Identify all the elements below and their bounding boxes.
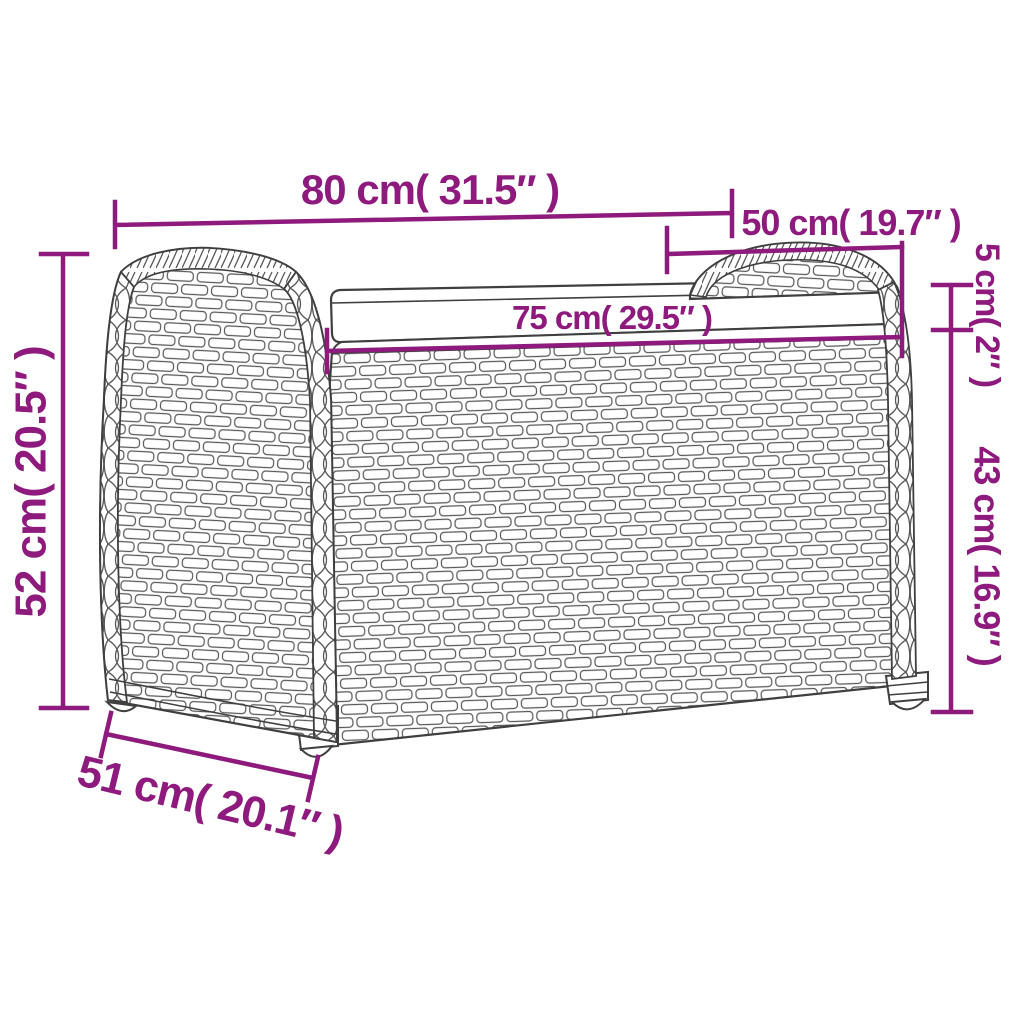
label-total-height: 52 cm( 20.5″ ) (7, 346, 56, 617)
storage-box-front (304, 338, 910, 748)
dimension-diagram: 80 cm( 31.5″ ) 50 cm( 19.7″ ) 75 cm( 29.… (0, 0, 1024, 1024)
label-top-width: 80 cm( 31.5″ ) (301, 166, 559, 213)
label-seat-width: 75 cm( 29.5″ ) (512, 299, 712, 336)
label-box-height: 43 cm( 16.9″ ) (967, 446, 1008, 665)
bench-dimension-drawing: 80 cm( 31.5″ ) 50 cm( 19.7″ ) 75 cm( 29.… (0, 0, 1024, 1024)
label-arm-depth: 50 cm( 19.7″ ) (741, 202, 960, 243)
label-cushion-height: 5 cm( 2″ ) (968, 243, 1006, 387)
